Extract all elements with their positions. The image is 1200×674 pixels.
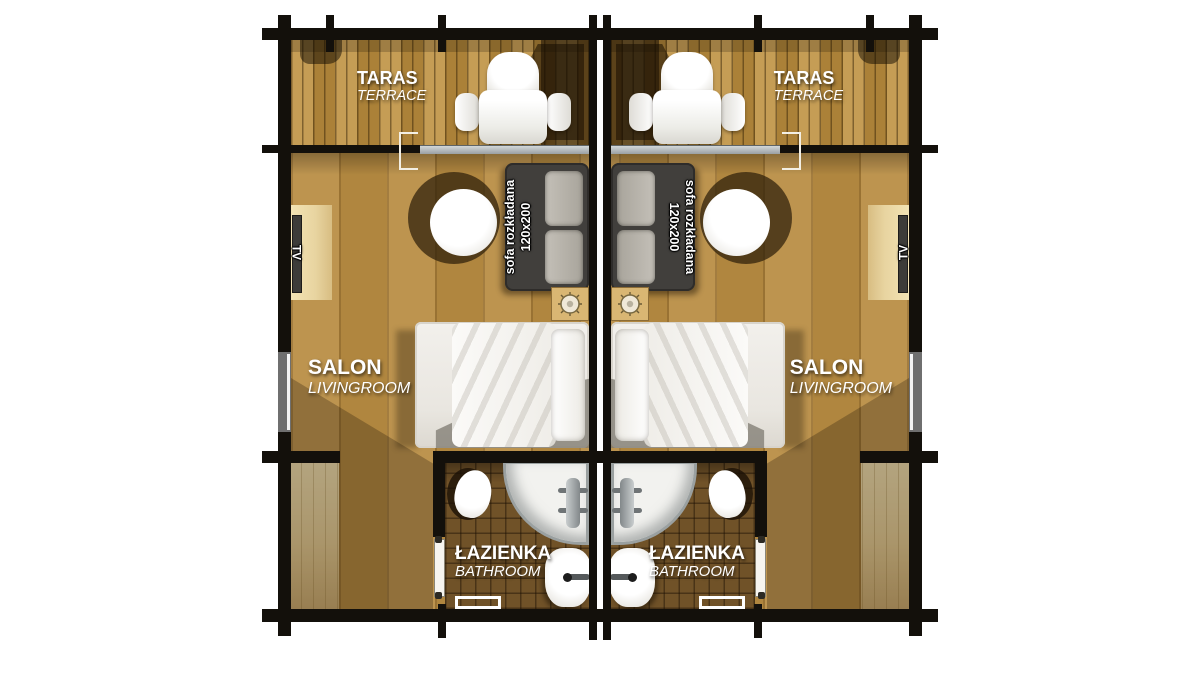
bathroom-label-en: BATHROOM [455,564,551,581]
wall-bottom [262,609,600,622]
wall-terrace [262,145,420,153]
terrace-corner-shadow [300,40,342,64]
livingroom-label-en: LIVINGROOM [308,380,410,398]
sofa-label: sofa rozkładana 120x200 [503,164,547,290]
round-table [703,189,770,256]
unit-right: TV sofa rozkładana 120x200 [600,0,1200,674]
sofa-label-line1: sofa rozkładana [683,180,697,274]
livingroom-label-en: LIVINGROOM [790,380,892,398]
bathroom-label-pl: ŁAZIENKA [455,543,551,564]
wall-bathroom-side [755,451,767,537]
bathroom-door [755,539,766,597]
terrace-glass-door [611,145,780,154]
terrace-chair-armrest [721,93,745,131]
terrace-chair-seat [479,90,547,144]
door-hinge [435,536,442,543]
bathroom-door [434,539,445,597]
window-glazing [287,354,290,430]
wall-bottom [600,609,938,622]
terrace-chair-seat [653,90,721,144]
log-end [754,604,762,638]
wall-mid [262,451,340,463]
faucet-knob [628,573,637,582]
log-end [438,15,446,52]
log-end [866,15,874,52]
bath-mat [455,596,501,609]
lamp-icon [556,290,584,318]
terrace-corner-shadow [858,40,900,64]
room-label-livingroom: SALON LIVINGROOM [308,356,410,397]
bed-pillow [615,329,649,441]
wall-center [603,15,611,640]
room-label-terrace: TARAS TERRACE [774,68,843,104]
wall-top [262,28,600,40]
sofa-label-line2: 120x200 [519,203,533,252]
wall-bathroom-top [433,451,600,463]
bathroom-label-en: BATHROOM [649,564,745,581]
wall-left [278,15,291,636]
wall-bathroom-side [433,451,445,537]
room-label-bathroom: ŁAZIENKA BATHROOM [649,543,745,581]
bath-mat [699,596,745,609]
terrace-label-en: TERRACE [357,88,426,104]
bed-duvet [452,323,556,447]
sofa-cushion [545,230,583,284]
sofa-label-line1: sofa rozkładana [503,180,517,274]
bathroom-label-pl: ŁAZIENKA [649,543,745,564]
bed-duvet [644,323,748,447]
door-hinge [758,536,765,543]
livingroom-label-pl: SALON [308,356,410,380]
terrace-label-pl: TARAS [357,68,426,88]
sofa-label-line2: 120x200 [667,203,681,252]
terrace-chair-armrest [547,93,571,131]
unit-left: TV sofa rozkładana 120x200 [0,0,600,674]
room-label-livingroom: SALON LIVINGROOM [790,356,892,397]
terrace-glass-door [420,145,589,154]
room-label-terrace: TARAS TERRACE [357,68,426,104]
wall-terrace [780,145,938,153]
door-hinge [758,592,765,599]
window-glazing [910,354,913,430]
log-end [438,604,446,638]
terrace-label-pl: TARAS [774,68,843,88]
livingroom-label-pl: SALON [790,356,892,380]
terrace-label-en: TERRACE [774,88,843,104]
sofa-cushion [617,171,655,226]
shower-column [566,478,580,528]
wall-top [600,28,938,40]
room-label-bathroom: ŁAZIENKA BATHROOM [455,543,551,581]
terrace-chair-armrest [629,93,653,131]
wall-mid [860,451,938,463]
round-table [430,189,497,256]
bed-pillow [551,329,585,441]
log-end [326,15,334,52]
wall-left [909,15,922,636]
terrace-chair-armrest [455,93,479,131]
log-end [754,15,762,52]
sofa-cushion [545,171,583,226]
lamp-icon [616,290,644,318]
door-swing-mark [782,132,801,170]
wall-bathroom-top [600,451,767,463]
faucet-knob [563,573,572,582]
shower-column [620,478,634,528]
sofa-cushion [617,230,655,284]
floor-plan: TV sofa rozkładana 120x200 [0,0,1200,674]
door-hinge [435,592,442,599]
door-swing-mark [399,132,418,170]
sofa-label: sofa rozkładana 120x200 [653,164,697,290]
wall-center [589,15,597,640]
